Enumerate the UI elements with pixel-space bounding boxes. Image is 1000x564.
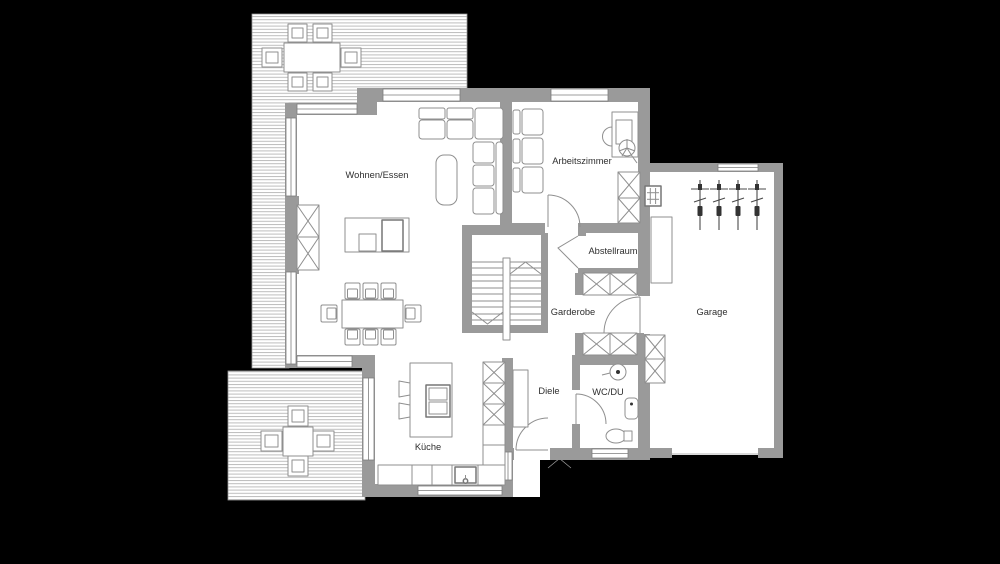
label-garderobe: Garderobe — [551, 307, 595, 317]
stool — [399, 403, 410, 419]
garage-closet — [645, 335, 665, 383]
floor-plan-canvas: Wohnen/Essen Arbeitszimmer Abstellraum G… — [0, 0, 1000, 564]
outdoor-table — [284, 43, 340, 72]
label-arbeitszimmer: Arbeitszimmer — [552, 156, 611, 166]
stool — [399, 381, 410, 397]
window-living-south — [297, 356, 352, 367]
dining-table — [342, 300, 403, 328]
meter-box-icon — [645, 186, 661, 206]
window-top-mid — [383, 89, 460, 101]
sideboard — [345, 218, 409, 252]
fireplace — [297, 205, 319, 270]
stair-divider — [503, 258, 510, 340]
label-kueche: Küche — [415, 442, 441, 452]
window-study — [551, 89, 608, 101]
label-diele: Diele — [538, 386, 559, 396]
sink-icon — [455, 467, 476, 483]
window-west-lower — [286, 272, 296, 364]
coffee-table — [436, 155, 457, 205]
window-top-left — [297, 104, 357, 114]
window-kitchen-south — [418, 486, 502, 495]
toilet-icon — [606, 429, 632, 443]
study-closet — [618, 172, 640, 223]
workbench — [651, 217, 672, 283]
floor-plan-page: Wohnen/Essen Arbeitszimmer Abstellraum G… — [0, 0, 1000, 564]
label-wohnen-essen: Wohnen/Essen — [346, 170, 409, 180]
label-abstellraum: Abstellraum — [588, 246, 637, 256]
window-kitchen-west — [363, 378, 374, 460]
label-garage: Garage — [696, 307, 727, 317]
window-garage — [718, 164, 758, 171]
wardrobe-row-lower — [575, 333, 644, 355]
tall-cabinets — [483, 362, 505, 465]
outdoor-table — [283, 427, 313, 456]
kitchen-counter — [378, 465, 505, 485]
label-wc-du: WC/DU — [592, 387, 624, 397]
hall-closet — [513, 370, 528, 427]
study-shelf — [513, 109, 543, 193]
washbasin-icon — [625, 398, 638, 419]
window-west-upper — [286, 118, 296, 196]
window-wc-south — [592, 449, 628, 458]
wardrobe-row-upper — [575, 273, 644, 295]
